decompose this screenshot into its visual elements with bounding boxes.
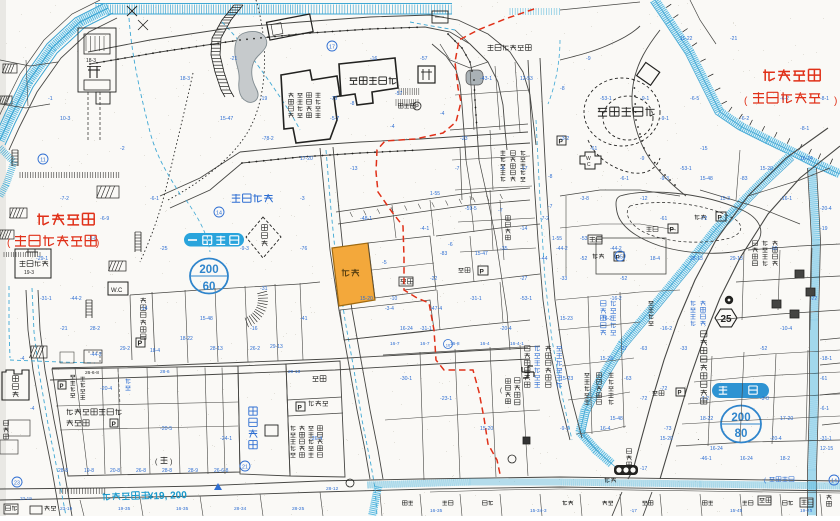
svg-text:-7: -7 xyxy=(455,166,460,172)
svg-text:-53-1: -53-1 xyxy=(600,96,612,102)
svg-text:16-4-1: 16-4-1 xyxy=(510,341,524,347)
svg-text:-9: -9 xyxy=(500,166,505,172)
svg-text:11: 11 xyxy=(40,158,46,164)
svg-text:-17: -17 xyxy=(640,466,647,472)
svg-text:21: 21 xyxy=(242,465,248,471)
svg-text:-16: -16 xyxy=(250,326,258,332)
svg-text:C: C xyxy=(587,162,591,168)
svg-text:P: P xyxy=(480,269,485,276)
svg-text:-31: -31 xyxy=(260,286,268,292)
svg-text:200: 200 xyxy=(199,264,218,276)
svg-text:17: 17 xyxy=(329,45,335,51)
svg-text:-4: -4 xyxy=(440,111,445,117)
svg-text:-9-3: -9-3 xyxy=(660,176,669,182)
svg-text:-9-1: -9-1 xyxy=(640,96,649,102)
svg-text:-44: -44 xyxy=(540,256,548,262)
svg-text:-9: -9 xyxy=(640,156,645,162)
svg-text:-44-2: -44-2 xyxy=(556,246,568,252)
svg-text:-78-2: -78-2 xyxy=(262,136,274,142)
svg-text:-6-1: -6-1 xyxy=(820,406,829,412)
svg-text:-4: -4 xyxy=(390,124,395,130)
svg-text:-30-1: -30-1 xyxy=(400,376,412,382)
svg-text:P: P xyxy=(112,421,117,428)
svg-text:28-9: 28-9 xyxy=(188,468,198,474)
svg-text:1-55: 1-55 xyxy=(430,191,440,197)
svg-text:12-15: 12-15 xyxy=(820,446,833,452)
svg-text:26-2: 26-2 xyxy=(250,346,260,352)
svg-text:18-2: 18-2 xyxy=(780,456,790,462)
svg-text:-35: -35 xyxy=(500,246,508,252)
svg-text:14: 14 xyxy=(831,479,837,485)
svg-text:16-24: 16-24 xyxy=(740,456,753,462)
svg-text:-10: -10 xyxy=(390,296,397,302)
svg-text:28-34: 28-34 xyxy=(234,506,247,512)
svg-text:20-8: 20-8 xyxy=(110,468,120,474)
svg-text:-3-8: -3-8 xyxy=(580,196,589,202)
svg-text:23-19: 23-19 xyxy=(60,506,73,512)
svg-text:16-4: 16-4 xyxy=(480,341,490,347)
svg-text:-8: -8 xyxy=(350,101,355,107)
svg-text:-16: -16 xyxy=(370,56,377,62)
svg-text:16-7: 16-7 xyxy=(420,341,430,347)
svg-text:¥19, 200: ¥19, 200 xyxy=(148,490,188,502)
svg-text:-4: -4 xyxy=(30,406,35,412)
svg-text:-20-4: -20-4 xyxy=(500,326,512,332)
svg-text:-61: -61 xyxy=(590,146,597,152)
svg-text:-17: -17 xyxy=(630,508,637,514)
svg-text:-6-2: -6-2 xyxy=(740,116,749,122)
svg-text:-14: -14 xyxy=(520,226,527,232)
svg-text:-21: -21 xyxy=(60,326,68,332)
svg-text:-6-2: -6-2 xyxy=(780,96,789,102)
svg-text:-9-3: -9-3 xyxy=(560,426,569,432)
svg-text:15-45: 15-45 xyxy=(730,508,743,514)
svg-text:-7-2: -7-2 xyxy=(700,396,709,402)
svg-text:-10: -10 xyxy=(770,246,777,252)
svg-text:-19: -19 xyxy=(820,226,828,232)
svg-text:18-3: 18-3 xyxy=(86,58,96,64)
svg-text:10-3: 10-3 xyxy=(60,116,70,122)
svg-text:-6-1: -6-1 xyxy=(150,196,159,202)
svg-text:12-53: 12-53 xyxy=(520,76,533,82)
svg-text:19-35: 19-35 xyxy=(118,506,131,512)
svg-text:-1: -1 xyxy=(48,96,53,102)
svg-text:-72: -72 xyxy=(640,396,647,402)
svg-text:-44-2: -44-2 xyxy=(610,246,622,252)
svg-text:-10-4: -10-4 xyxy=(780,326,792,332)
svg-text:-63: -63 xyxy=(640,346,647,352)
svg-text:15-20: 15-20 xyxy=(660,436,673,442)
svg-text:-26-4: -26-4 xyxy=(310,436,322,442)
svg-text:-6-9: -6-9 xyxy=(100,216,109,222)
svg-text:15-20: 15-20 xyxy=(760,166,773,172)
svg-text:-31-1: -31-1 xyxy=(420,326,432,332)
svg-text:-47-4: -47-4 xyxy=(430,306,442,312)
svg-text:-3-8: -3-8 xyxy=(760,396,769,402)
svg-text:17-20: 17-20 xyxy=(300,156,313,162)
svg-text:-33: -33 xyxy=(680,346,687,352)
svg-text:-57: -57 xyxy=(420,56,428,62)
svg-text:-2: -2 xyxy=(120,146,125,152)
svg-text:28-25: 28-25 xyxy=(292,506,305,512)
svg-text:-61: -61 xyxy=(820,376,827,382)
svg-text:-41: -41 xyxy=(300,316,308,322)
svg-text:-23-1: -23-1 xyxy=(440,396,452,402)
svg-text:16-35: 16-35 xyxy=(176,506,189,512)
svg-text:18-3: 18-3 xyxy=(180,76,190,82)
svg-text:-20-5: -20-5 xyxy=(160,426,172,432)
svg-text:28-2: 28-2 xyxy=(90,326,100,332)
svg-text:23: 23 xyxy=(14,481,20,487)
svg-text:17-20: 17-20 xyxy=(780,416,793,422)
svg-text:-20-4: -20-4 xyxy=(770,436,782,442)
svg-text:P: P xyxy=(670,227,675,234)
svg-text:-27: -27 xyxy=(520,276,527,282)
svg-text:18-4: 18-4 xyxy=(650,256,660,262)
svg-text:-76-2: -76-2 xyxy=(600,316,612,322)
svg-text:-19: -19 xyxy=(260,96,267,102)
svg-text:15-47: 15-47 xyxy=(220,116,233,122)
svg-text:-8: -8 xyxy=(548,174,553,180)
svg-text:-21: -21 xyxy=(730,36,737,42)
svg-text:16-24: 16-24 xyxy=(400,326,413,332)
svg-text:-16-1: -16-1 xyxy=(780,196,792,202)
svg-text:P: P xyxy=(415,105,419,111)
svg-text:-4: -4 xyxy=(20,356,25,362)
svg-text:-23: -23 xyxy=(460,136,468,142)
svg-text:-24-1: -24-1 xyxy=(220,436,232,442)
svg-text:-73: -73 xyxy=(664,426,672,432)
svg-text:-4-1: -4-1 xyxy=(420,226,429,232)
svg-text:-72: -72 xyxy=(660,386,667,392)
svg-text:19-3: 19-3 xyxy=(24,270,34,276)
svg-text:-33: -33 xyxy=(560,276,567,282)
svg-text:19-25: 19-25 xyxy=(800,508,813,514)
svg-text:18-22: 18-22 xyxy=(180,336,193,342)
svg-text:28-8: 28-8 xyxy=(162,468,172,474)
svg-text:-9-3: -9-3 xyxy=(240,246,249,252)
svg-text:15-34-3: 15-34-3 xyxy=(530,508,547,514)
svg-text:-83: -83 xyxy=(740,176,748,182)
svg-text:-31-1: -31-1 xyxy=(470,296,482,302)
svg-text:15-48: 15-48 xyxy=(200,316,213,322)
svg-text:-53-1: -53-1 xyxy=(520,296,532,302)
svg-text:15-3: 15-3 xyxy=(720,196,730,202)
svg-text:-20-4: -20-4 xyxy=(820,206,832,212)
svg-text:16-35: 16-35 xyxy=(430,508,443,514)
svg-text:28-13: 28-13 xyxy=(210,346,223,352)
svg-text:28-13: 28-13 xyxy=(690,256,703,262)
svg-text:-5-7: -5-7 xyxy=(330,116,339,122)
svg-text:28-8: 28-8 xyxy=(58,468,68,474)
svg-text:29-13: 29-13 xyxy=(288,369,301,375)
svg-text:16: 16 xyxy=(446,343,451,348)
svg-text:-63: -63 xyxy=(624,376,632,382)
svg-text:15-23: 15-23 xyxy=(560,316,573,322)
svg-text:P: P xyxy=(718,215,723,222)
svg-text:-43-1: -43-1 xyxy=(480,76,492,82)
svg-text:P: P xyxy=(298,405,303,412)
svg-text:19-8: 19-8 xyxy=(84,468,94,474)
svg-text:-18-1: -18-1 xyxy=(820,356,832,362)
svg-text:-31-1: -31-1 xyxy=(820,436,832,442)
svg-text:W.C: W.C xyxy=(111,288,123,294)
svg-text:-53-1: -53-1 xyxy=(680,166,692,172)
svg-text:15-20: 15-20 xyxy=(360,296,373,302)
svg-text:-16-2: -16-2 xyxy=(660,326,672,332)
svg-text:-48-1: -48-1 xyxy=(360,216,372,222)
svg-text:15-20: 15-20 xyxy=(480,426,493,432)
svg-text:-8-1: -8-1 xyxy=(800,126,809,132)
svg-text:-57: -57 xyxy=(395,91,402,97)
svg-text:·: · xyxy=(697,435,700,444)
svg-text:-9-1: -9-1 xyxy=(660,116,669,122)
svg-text:P: P xyxy=(138,341,143,348)
svg-text:-31-1: -31-1 xyxy=(40,296,52,302)
svg-text:-8: -8 xyxy=(560,86,565,92)
svg-text:-25: -25 xyxy=(160,246,168,252)
svg-text:18-22: 18-22 xyxy=(700,416,713,422)
svg-text:29-13: 29-13 xyxy=(270,344,283,350)
svg-text:15-47: 15-47 xyxy=(475,251,488,257)
svg-text:60: 60 xyxy=(203,281,216,293)
svg-text:-59-5: -59-5 xyxy=(465,206,477,212)
svg-text:-3-4: -3-4 xyxy=(385,306,394,312)
svg-text:-61: -61 xyxy=(660,216,667,222)
svg-text:16-7: 16-7 xyxy=(390,341,400,347)
svg-text:23-19: 23-19 xyxy=(20,496,32,501)
svg-text:): ) xyxy=(96,238,99,249)
svg-text:-27: -27 xyxy=(620,346,627,352)
svg-text:15-23: 15-23 xyxy=(600,356,613,362)
svg-text:-22: -22 xyxy=(430,276,437,282)
svg-text:-22: -22 xyxy=(810,296,817,302)
svg-text:-16-2: -16-2 xyxy=(610,296,622,302)
svg-text:-13: -13 xyxy=(350,166,358,172)
svg-text:11-22: 11-22 xyxy=(680,36,693,42)
svg-text:(: ( xyxy=(500,388,502,394)
svg-text:-44-2: -44-2 xyxy=(70,296,82,302)
svg-text:-20-4: -20-4 xyxy=(100,386,112,392)
svg-text:15-48: 15-48 xyxy=(700,176,713,182)
svg-text:-3-2: -3-2 xyxy=(560,136,569,142)
svg-text:16-24: 16-24 xyxy=(710,446,723,452)
svg-text:-15: -15 xyxy=(700,146,708,152)
svg-text:-9: -9 xyxy=(586,56,591,62)
svg-text:-5: -5 xyxy=(382,260,387,266)
svg-text:-7-2: -7-2 xyxy=(60,196,69,202)
svg-text:-52: -52 xyxy=(580,256,587,262)
svg-text:-7: -7 xyxy=(498,208,503,214)
svg-text:16-8: 16-8 xyxy=(450,341,460,347)
svg-text:29-2: 29-2 xyxy=(120,346,130,352)
svg-text:15-23: 15-23 xyxy=(560,376,573,382)
svg-text:-46-1: -46-1 xyxy=(700,456,712,462)
svg-text:18-4: 18-4 xyxy=(150,348,160,354)
svg-text:1-55: 1-55 xyxy=(552,236,562,242)
svg-text:-76: -76 xyxy=(300,246,307,252)
svg-text:-17: -17 xyxy=(520,166,528,172)
svg-text:-6-5: -6-5 xyxy=(690,96,699,102)
svg-text:80: 80 xyxy=(735,428,748,440)
svg-text:-6-1: -6-1 xyxy=(620,176,629,182)
svg-text:15: 15 xyxy=(617,255,623,261)
svg-text:): ) xyxy=(170,459,172,466)
svg-text:-72: -72 xyxy=(700,216,707,222)
svg-text:-21: -21 xyxy=(230,56,237,62)
svg-text:-8-1: -8-1 xyxy=(820,96,829,102)
svg-text:14: 14 xyxy=(216,211,222,217)
svg-text:(: ( xyxy=(764,478,766,484)
svg-text:26-6-8: 26-6-8 xyxy=(85,370,99,376)
svg-text:-12: -12 xyxy=(640,196,648,202)
svg-text:28-12: 28-12 xyxy=(326,486,339,492)
svg-text:26-8: 26-8 xyxy=(136,468,146,474)
svg-text:-14: -14 xyxy=(140,306,148,312)
svg-text:): ) xyxy=(834,96,837,107)
svg-text:29-13: 29-13 xyxy=(730,256,743,262)
svg-text:26-6-8: 26-6-8 xyxy=(214,468,229,474)
svg-text:-52: -52 xyxy=(760,346,767,352)
svg-text:-79: -79 xyxy=(330,96,337,102)
svg-text:-83: -83 xyxy=(440,251,447,257)
svg-text:28-6: 28-6 xyxy=(160,369,170,375)
svg-text:-3: -3 xyxy=(300,196,305,202)
svg-text:-52: -52 xyxy=(620,276,627,282)
svg-text:16-4: 16-4 xyxy=(600,426,610,432)
svg-text:-44-2: -44-2 xyxy=(90,352,102,358)
svg-text:P: P xyxy=(60,384,64,390)
svg-text:P: P xyxy=(678,391,682,397)
svg-text:-7: -7 xyxy=(548,204,553,210)
svg-text:16-24: 16-24 xyxy=(800,156,813,162)
svg-text:15-48: 15-48 xyxy=(610,416,623,422)
svg-text:-53: -53 xyxy=(580,236,588,242)
svg-text:-6: -6 xyxy=(448,242,453,248)
svg-text:-29-1: -29-1 xyxy=(36,256,48,262)
